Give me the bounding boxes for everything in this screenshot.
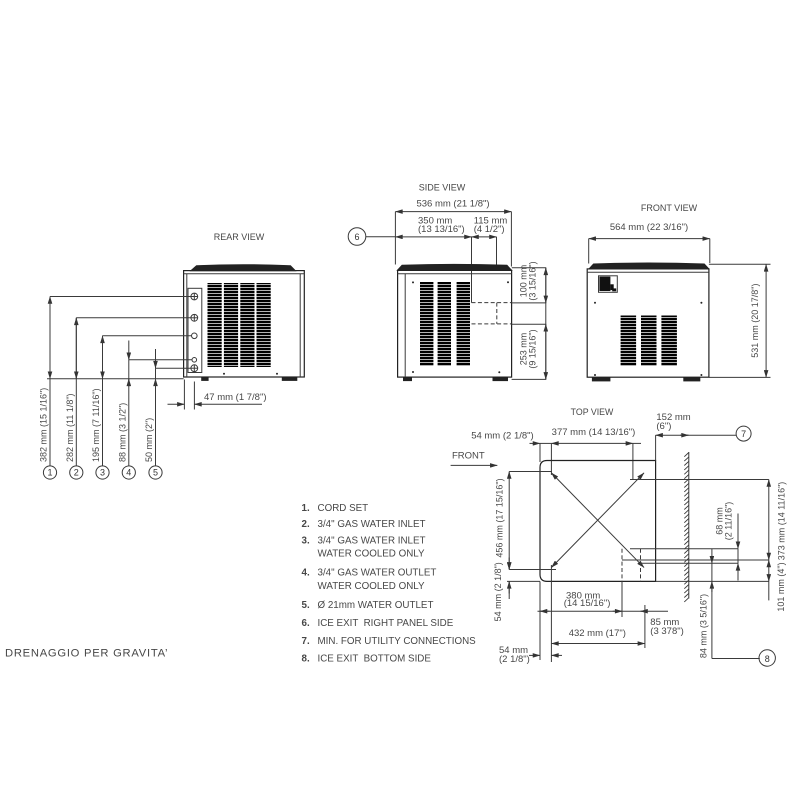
svg-text:536 mm (21 1/8"): 536 mm (21 1/8"): [416, 199, 489, 210]
svg-text:54 mm (2 1/8"): 54 mm (2 1/8"): [471, 431, 534, 442]
svg-text:531 mm (20 17/8"): 531 mm (20 17/8"): [750, 283, 760, 357]
svg-text:195 mm (7 11/16"): 195 mm (7 11/16"): [91, 388, 101, 462]
svg-text:282 mm (11 1/8"): 282 mm (11 1/8"): [65, 393, 75, 462]
svg-text:(4 1/2"): (4 1/2"): [474, 224, 505, 235]
svg-text:6.ICE EXIT RIGHT PANEL SIDE: 6.ICE EXIT RIGHT PANEL SIDE: [302, 618, 454, 629]
svg-text:7: 7: [741, 429, 746, 439]
svg-text:3: 3: [100, 468, 105, 478]
svg-text:(6"): (6"): [656, 421, 671, 432]
svg-text:373 mm (14 11/16"): 373 mm (14 11/16"): [777, 482, 787, 561]
svg-text:101 mm (4"): 101 mm (4"): [776, 562, 786, 611]
svg-text:84 mm (3 5/16"): 84 mm (3 5/16"): [699, 594, 709, 658]
svg-text:432 mm (17"): 432 mm (17"): [569, 628, 626, 639]
svg-text:3.3/4" GAS WATER INLET: 3.3/4" GAS WATER INLET: [302, 536, 426, 547]
svg-text:7.MIN. FOR UTILITY CONNECTIONS: 7.MIN. FOR UTILITY CONNECTIONS: [302, 636, 477, 647]
svg-text:382 mm (15 1/16"): 382 mm (15 1/16"): [39, 388, 49, 462]
svg-text:(13 13/16"): (13 13/16"): [418, 224, 465, 235]
svg-text:REAR VIEW: REAR VIEW: [214, 232, 265, 242]
svg-text:54 mm (2 1/8"): 54 mm (2 1/8"): [493, 562, 503, 621]
svg-text:SIDE VIEW: SIDE VIEW: [419, 183, 466, 193]
svg-text:4.3/4" GAS WATER OUTLET: 4.3/4" GAS WATER OUTLET: [302, 568, 437, 579]
svg-text:FRONT VIEW: FRONT VIEW: [641, 203, 698, 213]
svg-text:8: 8: [765, 654, 770, 664]
svg-text:4: 4: [126, 468, 131, 478]
svg-text:(2 1/8"): (2 1/8"): [499, 654, 530, 665]
svg-text:FRONT: FRONT: [452, 451, 485, 462]
svg-text:456 mm (17 15/16"): 456 mm (17 15/16"): [495, 478, 505, 557]
svg-text:DRENAGGIO PER GRAVITA’: DRENAGGIO PER GRAVITA’: [5, 648, 168, 660]
svg-text:(2 11/16"): (2 11/16"): [724, 502, 734, 541]
svg-text:TOP VIEW: TOP VIEW: [571, 407, 614, 417]
svg-text:(14 15/16"): (14 15/16"): [564, 598, 611, 609]
svg-text:(3 15/16"): (3 15/16"): [528, 261, 538, 300]
svg-text:(3 378"): (3 378"): [650, 626, 683, 637]
svg-text:377 mm (14 13/16"): 377 mm (14 13/16"): [552, 427, 636, 438]
svg-text:47 mm (1 7/8"): 47 mm (1 7/8"): [204, 392, 267, 403]
svg-text:50 mm (2"): 50 mm (2"): [144, 418, 154, 462]
svg-text:2.3/4" GAS WATER INLET: 2.3/4" GAS WATER INLET: [302, 519, 426, 530]
svg-text:WATER COOLED ONLY: WATER COOLED ONLY: [318, 581, 426, 592]
svg-text:6: 6: [354, 232, 359, 242]
svg-text:2: 2: [74, 468, 79, 478]
svg-text:88 mm (3 1/2"): 88 mm (3 1/2"): [117, 403, 127, 462]
svg-text:5.Ø 21mm WATER OUTLET: 5.Ø 21mm WATER OUTLET: [302, 600, 434, 611]
svg-text:WATER COOLED ONLY: WATER COOLED ONLY: [318, 549, 426, 560]
svg-text:8.ICE EXIT BOTTOM SIDE: 8.ICE EXIT BOTTOM SIDE: [302, 654, 432, 665]
svg-text:564 mm (22 3/16"): 564 mm (22 3/16"): [610, 222, 688, 233]
svg-text:(9 15/16"): (9 15/16"): [528, 329, 538, 368]
svg-text:5: 5: [153, 468, 158, 478]
svg-text:1: 1: [47, 468, 52, 478]
